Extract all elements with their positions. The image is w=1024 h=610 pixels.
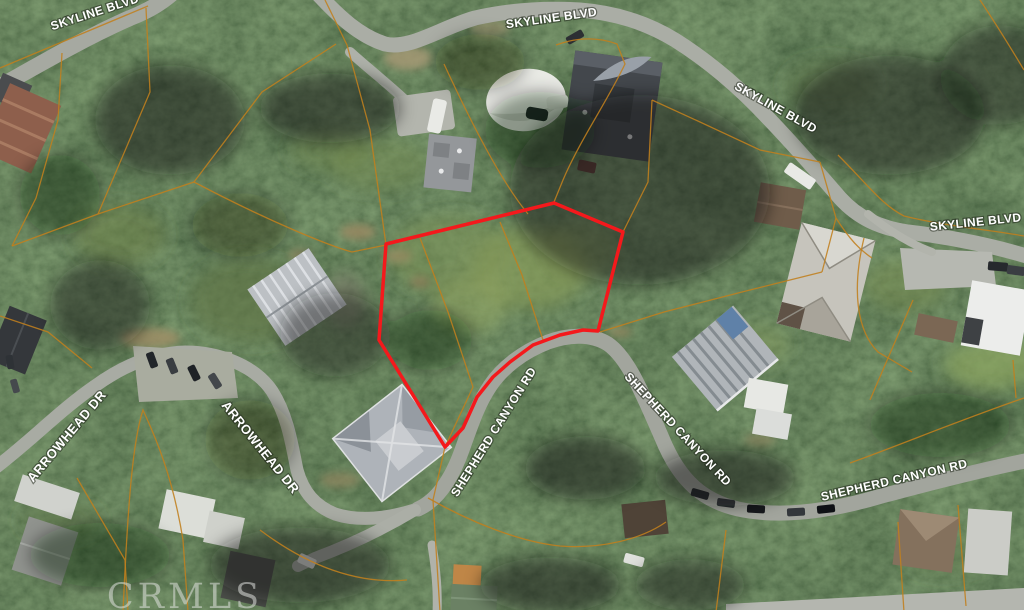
building [892, 509, 959, 573]
aerial-map[interactable]: SKYLINE BLVD SKYLINE BLVD SKYLINE BLVD S… [0, 0, 1024, 610]
crmls-watermark: CRMLS [107, 577, 263, 610]
building [961, 280, 1024, 355]
map-canvas: SKYLINE BLVD SKYLINE BLVD SKYLINE BLVD S… [0, 0, 1024, 610]
building [621, 500, 668, 538]
building [423, 134, 476, 193]
